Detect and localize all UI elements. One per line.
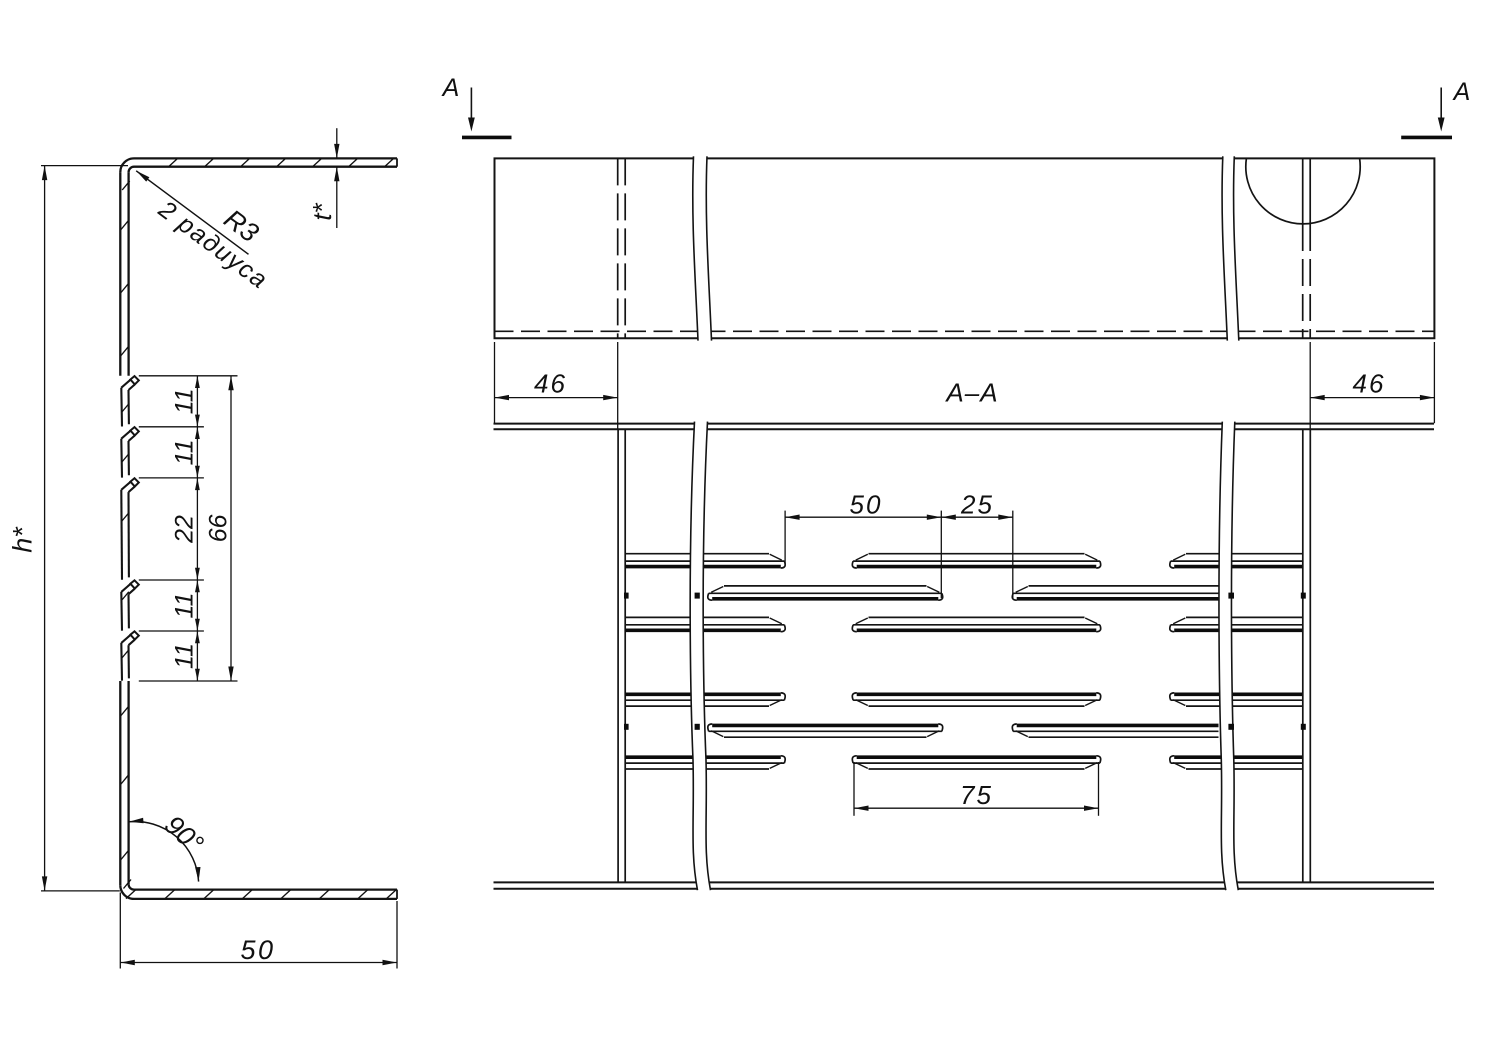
svg-text:46: 46 [1353,369,1386,399]
svg-text:11: 11 [171,388,199,414]
svg-text:46: 46 [534,369,567,399]
svg-text:t*: t* [307,202,337,220]
svg-text:A: A [441,74,460,102]
svg-text:75: 75 [960,780,993,810]
svg-text:66: 66 [205,514,233,542]
svg-text:50: 50 [240,935,275,965]
svg-text:22: 22 [171,515,199,544]
svg-text:A–A: A–A [944,378,998,408]
svg-text:A: A [1452,78,1471,106]
svg-text:50: 50 [850,490,883,520]
svg-text:11: 11 [171,643,199,669]
svg-text:h*: h* [8,526,38,553]
svg-text:11: 11 [171,593,199,619]
svg-text:11: 11 [171,439,199,465]
svg-text:25: 25 [960,490,994,520]
